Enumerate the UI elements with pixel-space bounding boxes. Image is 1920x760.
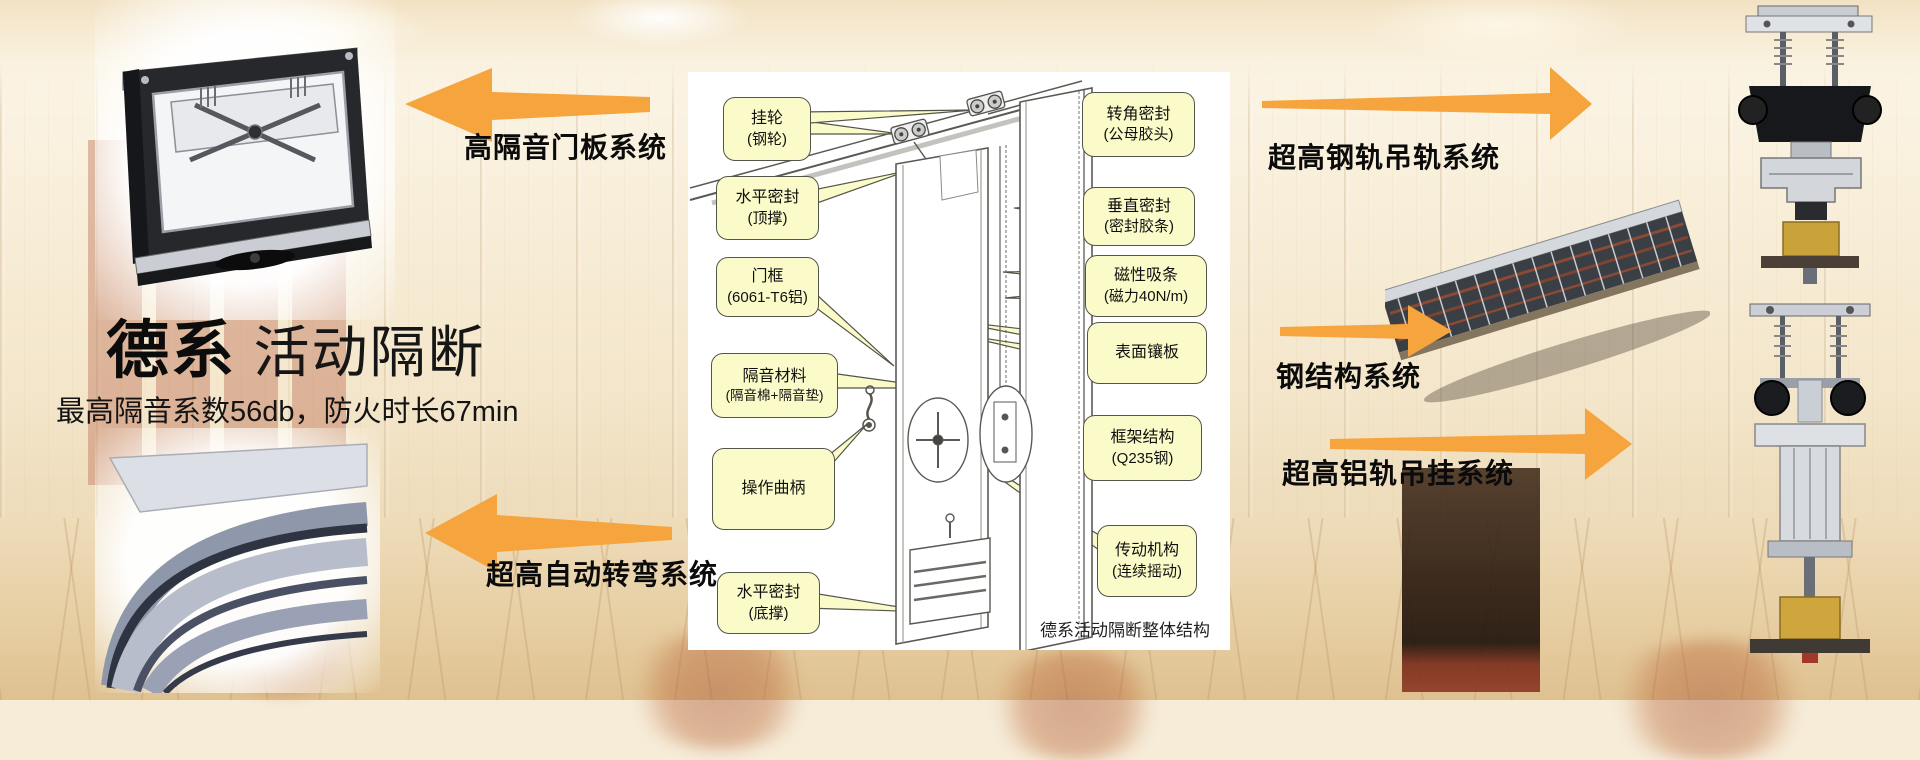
label-steel-rail-system: 超高钢轨吊轨系统	[1268, 136, 1500, 176]
callout-line1: 框架结构	[1110, 428, 1174, 448]
callout-horizontal-seal-top: 水平密封 (顶撑)	[716, 176, 819, 240]
callout-horizontal-seal-bottom: 水平密封 (底撑)	[717, 572, 820, 634]
right-arrow-icon	[1280, 305, 1452, 357]
title-brand: 德系	[106, 316, 236, 386]
aluminium-rail-hanger-photo	[1710, 296, 1910, 696]
callout-line2: (隔音棉+隔音垫)	[726, 387, 824, 404]
callout-line1: 水平密封	[736, 583, 800, 603]
steel-rail-hanger-illustration	[1703, 2, 1918, 290]
label-auto-turn-system: 超高自动转弯系统	[486, 553, 718, 593]
steel-rail-hanger-photo	[1703, 2, 1918, 290]
title-product: 活动隔断	[236, 321, 486, 384]
right-arrow-icon	[1262, 67, 1592, 140]
vertical-seal-strip	[1000, 145, 1006, 417]
callout-line2: (密封胶条)	[1104, 217, 1174, 236]
callout-line1: 水平密封	[735, 188, 799, 208]
dark-doorway	[1402, 468, 1540, 692]
callout-line1: 隔音材料	[742, 367, 806, 387]
callout-operating-crank: 操作曲柄	[712, 448, 835, 530]
callout-line2: (底撑)	[749, 604, 789, 623]
callout-surface-panel: 表面镶板	[1087, 322, 1207, 384]
callout-line2: (磁力40N/m)	[1104, 287, 1188, 306]
callout-frame-structure: 框架结构 (Q235钢)	[1083, 415, 1202, 481]
callout-vertical-seal: 垂直密封 (密封胶条)	[1083, 187, 1195, 246]
callout-line1: 挂轮	[751, 109, 783, 129]
callout-door-frame: 门框 (6061-T6铝)	[716, 257, 819, 317]
door-panel-cross-section-photo	[95, 0, 395, 320]
callout-line1: 磁性吸条	[1114, 266, 1178, 286]
callout-corner-seal: 转角密封 (公母胶头)	[1082, 92, 1195, 157]
arrow-steel-structure-system	[1276, 300, 1456, 362]
operating-crank-drawing	[863, 386, 875, 431]
callout-line1: 表面镶板	[1115, 343, 1179, 363]
callout-line1: 传动机构	[1115, 541, 1179, 561]
callout-line1: 操作曲柄	[741, 479, 805, 499]
callout-line1: 垂直密封	[1107, 197, 1171, 217]
page-title: 德系 活动隔断	[106, 300, 486, 391]
callout-line2: (6061-T6铝)	[727, 288, 808, 307]
label-alu-rail-system: 超高铝轨吊挂系统	[1282, 452, 1514, 492]
callout-transmission-mechanism: 传动机构 (连续摇动)	[1097, 525, 1197, 597]
callout-line2: (连续摇动)	[1112, 562, 1182, 581]
label-door-panel-system: 高隔音门板系统	[464, 126, 667, 166]
diagram-caption: 德系活动隔断整体结构	[1040, 616, 1210, 641]
callout-line1: 门框	[751, 267, 783, 287]
callout-line2: (公母胶头)	[1104, 125, 1174, 144]
callout-hanging-wheel: 挂轮 (钢轮)	[723, 97, 811, 161]
aluminium-rail-hanger-illustration	[1710, 296, 1910, 696]
door-panel-right	[1020, 88, 1092, 650]
door-panel-illustration	[95, 0, 395, 320]
callout-line2: (Q235钢)	[1112, 449, 1174, 468]
callout-line2: (钢轮)	[747, 130, 787, 149]
diagram-panel: 挂轮 (钢轮) 水平密封 (顶撑) 门框 (6061-T6铝) 隔音材料 (隔音…	[688, 72, 1230, 650]
callout-acoustic-material: 隔音材料 (隔音棉+隔音垫)	[711, 353, 838, 418]
callout-line2: (顶撑)	[748, 209, 788, 228]
carpet-medallion	[980, 650, 1170, 760]
callout-magnetic-strip: 磁性吸条 (磁力40N/m)	[1085, 255, 1207, 317]
page-subtitle: 最高隔音系数56db，防火时长67min	[56, 388, 519, 430]
curved-track-photo	[95, 428, 380, 693]
callout-line1: 转角密封	[1106, 105, 1170, 125]
label-steel-structure-system: 钢结构系统	[1276, 355, 1421, 395]
curved-track-illustration	[95, 428, 380, 693]
